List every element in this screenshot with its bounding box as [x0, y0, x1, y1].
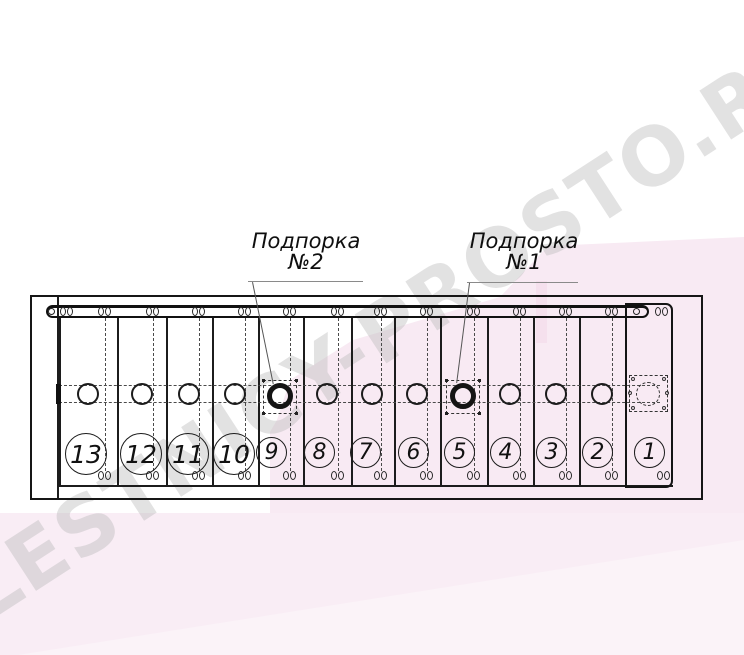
- mount-plate-hole: [636, 382, 660, 406]
- rod-hole: [77, 383, 99, 405]
- section-number-badge: 10: [213, 433, 255, 475]
- fastener-icon: [283, 471, 296, 480]
- section-number: 4: [499, 440, 513, 465]
- fastener-icon: [655, 307, 668, 316]
- section-number: 13: [70, 440, 102, 469]
- rod-hole: [131, 383, 153, 405]
- support-label-2: Подпорка №2: [231, 231, 381, 273]
- support-mount-ring: [267, 383, 293, 409]
- fastener-icon: [374, 307, 387, 316]
- section-number-badge: 3: [536, 437, 567, 468]
- fastener-icon: [98, 307, 111, 316]
- section-number-badge: 12: [120, 433, 162, 475]
- section-number-badge: 11: [167, 433, 209, 475]
- support-mount-ring: [450, 383, 476, 409]
- rod-hole: [499, 383, 521, 405]
- section-number-badge: 6: [398, 437, 429, 468]
- fastener-icon: [467, 307, 480, 316]
- section-number: 11: [172, 440, 204, 469]
- technical-drawing: LESTNICY-PROSTO.RU: [0, 0, 744, 655]
- section-number: 3: [545, 440, 559, 465]
- fastener-icon: [374, 471, 387, 480]
- section-number: 8: [313, 440, 327, 465]
- fastener-icon: [146, 307, 159, 316]
- fastener-icon: [559, 307, 572, 316]
- support-label-2-line1: Подпорка: [231, 231, 381, 252]
- support-label-2-line2: №2: [231, 252, 381, 273]
- rod-hole: [224, 383, 246, 405]
- fastener-icon: [657, 471, 670, 480]
- section-number: 5: [453, 440, 467, 465]
- rod-hole: [406, 383, 428, 405]
- fastener-icon: [331, 307, 344, 316]
- section-number-badge: 7: [350, 437, 381, 468]
- rod-hole: [316, 383, 338, 405]
- section-number: 2: [591, 440, 605, 465]
- fastener-icon: [559, 471, 572, 480]
- rod-hole: [361, 383, 383, 405]
- section-number-badge: 2: [582, 437, 613, 468]
- fastener-icon: [420, 307, 433, 316]
- fastener-icon: [60, 307, 73, 316]
- section-number: 9: [265, 440, 279, 465]
- fastener-icon: [605, 471, 618, 480]
- section-number-badge: 4: [490, 437, 521, 468]
- drawing-layer: 13 12 11 10 9 8 7 6 5 4 3 2 1 Подпорка №…: [0, 0, 744, 655]
- rod-hole: [545, 383, 567, 405]
- section-number-badge: 13: [65, 433, 107, 475]
- section-number-badge: 8: [304, 437, 335, 468]
- fastener-icon: [513, 307, 526, 316]
- fastener-icon: [331, 471, 344, 480]
- fastener-icon: [98, 471, 111, 480]
- rod-hole: [591, 383, 613, 405]
- fastener-icon: [192, 307, 205, 316]
- section-number-badge: 9: [256, 437, 287, 468]
- section-number: 6: [407, 440, 421, 465]
- rod-end-cap: [56, 384, 61, 404]
- rod-hole: [178, 383, 200, 405]
- label-underline: [248, 281, 363, 282]
- support-label-1-line2: №1: [449, 252, 599, 273]
- section-number-badge: 1: [634, 437, 665, 468]
- section-number-badge: 5: [444, 437, 475, 468]
- section-number: 10: [218, 440, 250, 469]
- fastener-icon: [238, 307, 251, 316]
- fastener-icon: [283, 307, 296, 316]
- fastener-icon: [420, 471, 433, 480]
- section-number: 12: [125, 440, 157, 469]
- support-label-1-line1: Подпорка: [449, 231, 599, 252]
- support-label-1: Подпорка №1: [449, 231, 599, 273]
- section-number: 7: [359, 440, 373, 465]
- hidden-edge-line: [338, 318, 339, 471]
- rail-end-hole-left: [48, 308, 55, 315]
- fastener-icon: [467, 471, 480, 480]
- section-number: 1: [643, 440, 657, 465]
- fastener-icon: [513, 471, 526, 480]
- label-underline: [467, 282, 578, 283]
- fastener-icon: [605, 307, 618, 316]
- rail-end-hole-right: [633, 308, 640, 315]
